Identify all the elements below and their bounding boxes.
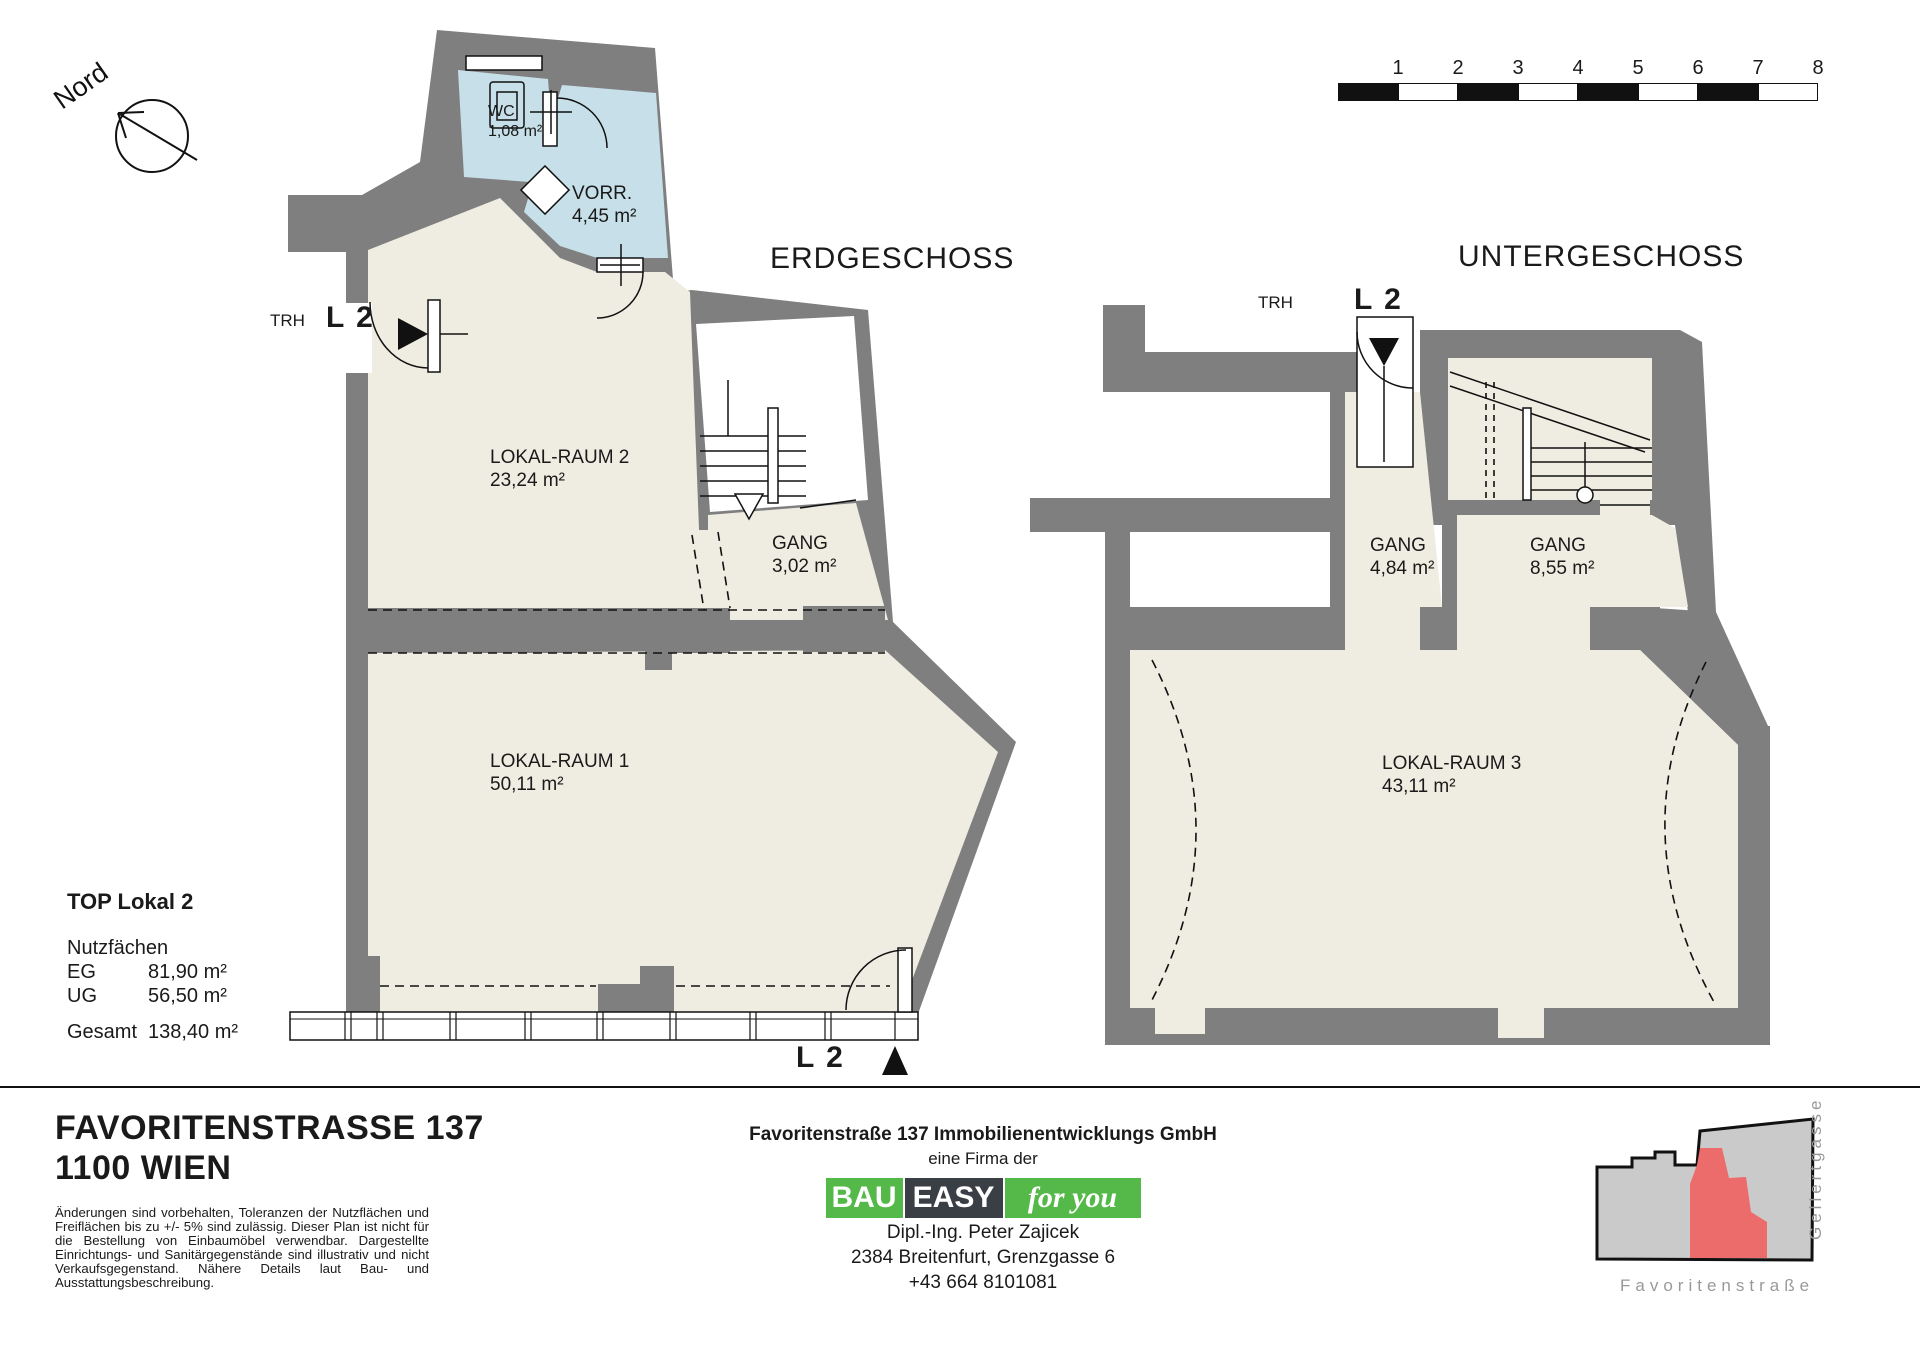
eg-front-door-leaf: [898, 948, 912, 1012]
scale-number: 5: [1632, 57, 1643, 80]
room-label-wc: WC: [488, 104, 515, 121]
scale-segment: [1518, 83, 1578, 101]
room-area-ug-gang-2: 8,55 m²: [1530, 559, 1594, 579]
eg-wall-seg-1: [480, 610, 587, 653]
summary-total-value: 138,40 m²: [148, 1022, 238, 1043]
room-label-lokal-raum-3: LOKAL-RAUM 3: [1382, 754, 1521, 774]
scale-number: 7: [1752, 57, 1763, 80]
eg-stair-rail: [768, 408, 778, 503]
eg-window-band: [290, 1012, 918, 1040]
room-label-vorraum: VORR.: [572, 184, 632, 204]
room-label-eg-gang: GANG: [772, 534, 828, 554]
scale-segment: [1578, 83, 1638, 101]
summary-row-label: UG: [67, 986, 97, 1007]
company-subline: eine Firma der: [700, 1149, 1266, 1169]
room-area-lokal-raum-1: 50,11 m²: [490, 775, 564, 795]
scale-segment: [1338, 83, 1398, 101]
room-label-ug-gang-2: GANG: [1530, 536, 1586, 556]
baueasy-logo: BAU EASY for you: [700, 1178, 1266, 1218]
site-map-street-bottom: Favoritenstraße: [1620, 1276, 1814, 1296]
room-label-lokal-raum-2: LOKAL-RAUM 2: [490, 448, 629, 468]
wc-door-leaf: [543, 92, 557, 146]
eg-wall-pier-left: [346, 956, 380, 1012]
contact-address: 2384 Breitenfurt, Grenzgasse 6: [700, 1245, 1266, 1270]
eg-title: ERDGESCHOSS: [770, 243, 1014, 275]
room-area-lokal-raum-3: 43,11 m²: [1382, 777, 1456, 797]
logo-easy: EASY: [905, 1178, 1003, 1218]
summary-row-value: 56,50 m²: [148, 986, 227, 1007]
compass: Nord: [48, 57, 197, 172]
wc-window: [466, 56, 542, 70]
eg-side-door-leaf: [428, 300, 440, 372]
compass-circle: [116, 100, 188, 172]
eg-unit-label-front: L 2: [796, 1042, 845, 1074]
eg-unit-label-side: L 2: [326, 302, 375, 334]
eg-stair-room: [696, 316, 868, 512]
ug-unit-label: L 2: [1354, 284, 1403, 316]
compass-label: Nord: [48, 57, 113, 115]
disclaimer-text: Änderungen sind vorbehalten, Toleranzen …: [55, 1206, 429, 1290]
company-block: Favoritenstraße 137 Immobilienentwicklun…: [700, 1124, 1266, 1295]
room-area-wc: 1,08 m²: [488, 124, 542, 141]
company-name: Favoritenstraße 137 Immobilienentwicklun…: [700, 1124, 1266, 1146]
contact-name: Dipl.-Ing. Peter Zajicek: [700, 1220, 1266, 1245]
room-area-eg-gang: 3,02 m²: [772, 557, 836, 577]
site-map: [1597, 1119, 1813, 1260]
scale-number: 1: [1392, 57, 1403, 80]
room-label-ug-gang-1: GANG: [1370, 536, 1426, 556]
north-arrow: [118, 112, 197, 160]
ug-stair-newel: [1577, 487, 1593, 503]
floor-plan-sheet: Nord 1 2 3 4 5 6 7 8 ERDGESCHOSS UNTERGE…: [0, 0, 1920, 1358]
ug-room-lokal-raum-3: [1130, 650, 1738, 1008]
eg-trh-label: TRH: [270, 312, 305, 330]
scale-segment: [1758, 83, 1818, 101]
logo-bau: BAU: [826, 1178, 903, 1218]
project-address-line2: 1100 WIEN: [55, 1148, 484, 1188]
site-map-street-side: Gellertgasse: [1806, 1097, 1826, 1240]
scale-number: 4: [1572, 57, 1583, 80]
eg-opening-lr2-gang: [688, 530, 710, 614]
summary-row-label: EG: [67, 962, 96, 983]
ug-trh-label: TRH: [1258, 294, 1293, 312]
ug-stair-rail: [1523, 408, 1531, 500]
ug-stair-room: [1448, 358, 1652, 500]
scale-segment: [1398, 83, 1458, 101]
scale-segment: [1458, 83, 1518, 101]
eg-wall-seg-3: [803, 606, 885, 652]
eg-plan: [288, 30, 1016, 1075]
scale-segment: [1698, 83, 1758, 101]
summary-row-value: 81,90 m²: [148, 962, 227, 983]
scale-number: 2: [1452, 57, 1463, 80]
scale-number: 6: [1692, 57, 1703, 80]
project-address-line1: FAVORITENSTRASSE 137: [55, 1108, 484, 1148]
contact-phone: +43 664 8101081: [700, 1270, 1266, 1295]
ug-title: UNTERGESCHOSS: [1458, 241, 1744, 273]
ug-plan: [1030, 305, 1770, 1045]
scale-number: 8: [1812, 57, 1823, 80]
scale-segment: [1638, 83, 1698, 101]
room-area-lokal-raum-2: 23,24 m²: [490, 471, 565, 491]
room-label-lokal-raum-1: LOKAL-RAUM 1: [490, 752, 629, 772]
summary-title: TOP Lokal 2: [67, 890, 193, 913]
summary-section: Nutzfächen: [67, 938, 168, 959]
room-area-vorraum: 4,45 m²: [572, 207, 636, 227]
eg-front-entrance-arrow: [882, 1046, 908, 1075]
logo-foryou: for you: [1005, 1178, 1141, 1218]
scale-number: 3: [1512, 57, 1523, 80]
room-area-ug-gang-1: 4,84 m²: [1370, 559, 1434, 579]
summary-total-label: Gesamt: [67, 1022, 137, 1043]
